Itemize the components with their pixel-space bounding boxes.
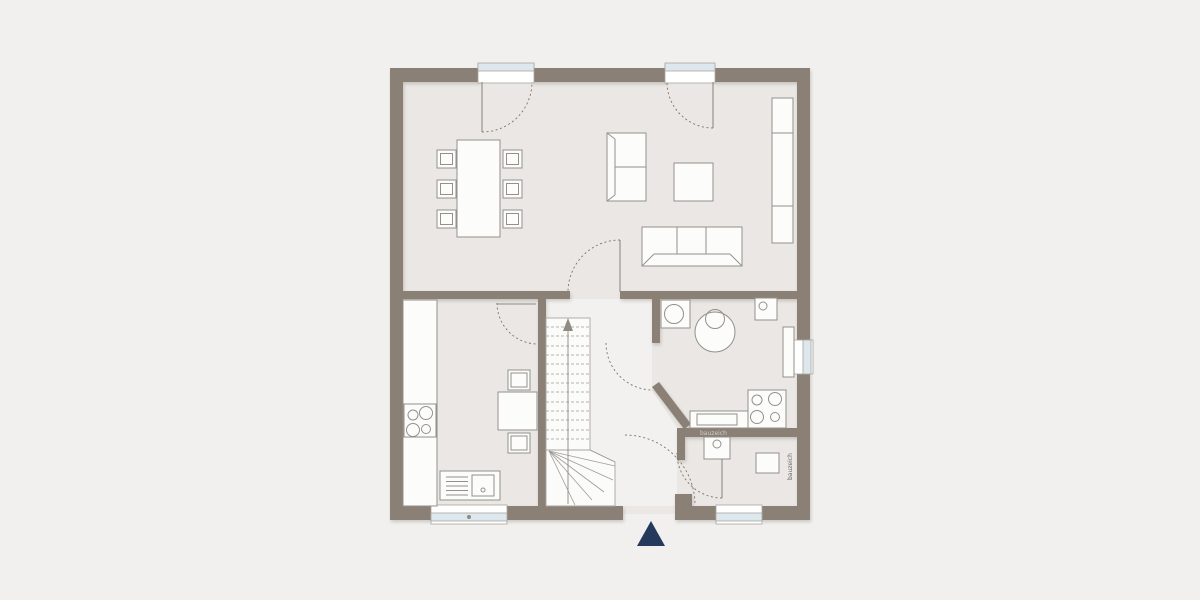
interior-wall-living-kitchen (393, 291, 570, 299)
kitchen-table (498, 392, 537, 430)
outer-wall-bottom-hall (675, 506, 718, 520)
wc-window (716, 505, 762, 524)
kitchen-sink-icon (440, 471, 500, 500)
toilet-icon (756, 453, 779, 473)
dining-chair (437, 180, 456, 198)
kitchen-chair (508, 433, 530, 453)
outer-wall-right-lower (797, 372, 810, 520)
outer-wall-top-left (390, 68, 480, 82)
floor-plan-canvas: bauzeich bauzeich (0, 0, 1200, 600)
kitchen-chair (508, 370, 530, 390)
utility-counter (690, 411, 748, 428)
outer-wall-top-right (713, 68, 810, 82)
coffee-table (674, 163, 713, 201)
cooktop-icon (404, 404, 436, 437)
dining-chair (503, 210, 522, 228)
dining-chair (503, 180, 522, 198)
sofa-3-seat (642, 227, 742, 266)
window-handle (467, 515, 471, 519)
radiator (783, 327, 794, 377)
kitchen-window (431, 505, 507, 524)
outer-wall-right-upper (797, 68, 810, 342)
window-glass (478, 63, 534, 71)
terrace-door-window-right (665, 63, 715, 83)
terrace-door-window-left (478, 63, 534, 83)
dining-chair (437, 210, 456, 228)
cooktop-icon (748, 390, 786, 428)
outer-wall-bottom-center (505, 506, 623, 520)
front-door-leaf-pier (675, 494, 692, 506)
interior-wall-hall-utility (652, 291, 660, 343)
interior-wall-hall-wc (677, 428, 685, 460)
window-glass (665, 63, 715, 71)
kitchen-counter (403, 300, 437, 506)
floor-plan: bauzeich bauzeich (0, 0, 1200, 600)
dining-area (437, 140, 522, 237)
dining-table (457, 140, 500, 237)
utility-window (794, 340, 813, 374)
dining-chair (503, 150, 522, 168)
sideboard (772, 98, 793, 243)
dining-chair (437, 150, 456, 168)
outer-wall-top-middle (532, 68, 667, 82)
hand-basin-icon (755, 298, 777, 320)
watermark-horizontal: bauzeich (700, 430, 727, 437)
window-glass (716, 513, 762, 521)
washbasin-icon (704, 437, 730, 459)
interior-wall-kitchen-stairs (538, 299, 546, 506)
sofa-2-seat (607, 133, 646, 201)
watermark-vertical: bauzeich (787, 453, 794, 480)
entrance-triangle-marker (637, 521, 665, 546)
window-glass (803, 340, 811, 374)
washing-machine-icon (661, 300, 690, 328)
